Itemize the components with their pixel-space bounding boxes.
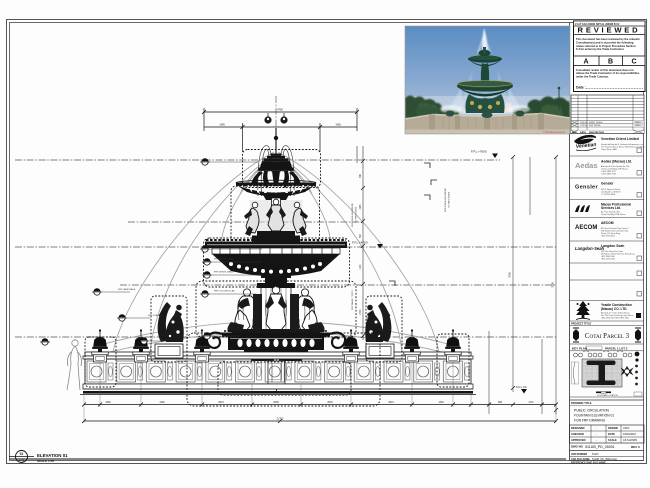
svg-text:REFERENCE DWG FILE NAME: REFERENCE DWG FILE NAME (571, 462, 606, 465)
svg-text:Aedas (Macau) Ltd.: Aedas (Macau) Ltd. (601, 160, 632, 164)
svg-text:F.F.L +4750: F.F.L +4750 (352, 241, 368, 245)
svg-text:Taipa, Macau SAR: Taipa, Macau SAR (601, 148, 617, 151)
svg-text:F.F.L ±0: F.F.L ±0 (516, 385, 527, 389)
svg-text:Venetian Orient Limited: Venetian Orient Limited (601, 137, 639, 141)
svg-text:1460: 1460 (438, 401, 444, 404)
svg-text:2700: 2700 (360, 309, 362, 315)
svg-text:Gensler: Gensler (575, 185, 598, 191)
svg-text:2515: 2515 (327, 401, 333, 404)
svg-text:APPROVED: APPROVED (571, 438, 586, 442)
svg-text:Date :: Date : (576, 86, 586, 90)
svg-text:-: - (596, 439, 597, 442)
svg-text:7600: 7600 (551, 282, 555, 288)
svg-text:DATE: DATE (608, 432, 615, 436)
svg-text:This document has been reviewe: This document has been reviewed by the r… (576, 37, 640, 41)
svg-text:Langdon Seah: Langdon Seah (601, 244, 624, 248)
svg-text:15/04/2016: 15/04/2016 (623, 432, 637, 436)
svg-text:f 852 2576 0416: f 852 2576 0416 (601, 259, 615, 261)
svg-text:FOUNTAIN ELEVATION 01: FOUNTAIN ELEVATION 01 (574, 414, 614, 418)
svg-text:t 1 213 615 6800: t 1 213 615 6800 (601, 193, 615, 196)
svg-text:1495: 1495 (335, 124, 341, 127)
svg-text:1495: 1495 (219, 124, 225, 127)
svg-text:FRP DENTIL BAND: FRP DENTIL BAND (214, 271, 234, 274)
svg-text:CHECKED: CHECKED (571, 432, 584, 436)
svg-text:AECOM: AECOM (601, 221, 614, 225)
svg-text:2060: 2060 (273, 401, 279, 404)
svg-text:DWG NO: DWG NO (571, 445, 584, 449)
svg-text:12/5/16: 12/5/16 (580, 125, 588, 127)
svg-text:REVIEWED: REVIEWED (578, 26, 641, 35)
svg-text:(Macau) CO. LTD.: (Macau) CO. LTD. (601, 307, 627, 311)
svg-text:FRP STATUE: FRP STATUE (148, 314, 162, 317)
svg-text:JOB NUMBER: JOB NUMBER (571, 453, 587, 456)
svg-text:7600: 7600 (508, 272, 512, 278)
svg-text:FOUNTAIN LOCATION: FOUNTAIN LOCATION (597, 394, 618, 397)
svg-text:980: 980 (498, 401, 503, 404)
svg-text:1960: 1960 (105, 401, 111, 404)
svg-text:DRAWN: DRAWN (608, 426, 618, 430)
svg-text:f +853 2833 1378: f +853 2833 1378 (601, 174, 616, 176)
svg-text:51123: 51123 (592, 453, 599, 456)
svg-text:F.F.L +7600: F.F.L +7600 (471, 150, 487, 154)
svg-text:TO SPEC 09960: TO SPEC 09960 (449, 191, 451, 208)
svg-text:1130: 1130 (360, 264, 362, 270)
svg-text:Consultant review of this docu: Consultant review of this document does … (576, 68, 634, 72)
svg-text:511UB_PD_05001: 511UB_PD_05001 (585, 445, 615, 449)
svg-text:FRP PANEL TYPE 2: FRP PANEL TYPE 2 (351, 289, 354, 310)
svg-text:FOR FRP DRAWING: FOR FRP DRAWING (574, 419, 606, 423)
svg-text:t 853 2870 3113 f 853 2870 3: t 853 2870 3113 f 853 2870 3116 (601, 317, 629, 320)
svg-text:ELEVATION 01: ELEVATION 01 (37, 453, 68, 458)
svg-text:01: 01 (20, 452, 24, 456)
svg-text:15/4/16: 15/4/16 (580, 122, 588, 124)
svg-text:21700: 21700 (277, 418, 284, 421)
svg-text:1460: 1460 (159, 401, 165, 404)
svg-text:4750: 4750 (277, 108, 283, 112)
svg-text:status referred to in Project: status referred to in Project Procedure … (576, 44, 636, 48)
svg-text:2515: 2515 (388, 401, 394, 404)
svg-text:-: - (596, 427, 597, 430)
svg-text:FRP ISSUE: FRP ISSUE (589, 125, 601, 127)
svg-text:FRP COLUMN CLAD: FRP COLUMN CLAD (214, 290, 235, 293)
svg-text:FRP FINISHING REFER: FRP FINISHING REFER (445, 188, 447, 212)
svg-text:DRAWING TITLE: DRAWING TITLE (571, 401, 592, 405)
svg-text:5.4 for action by the Trade Co: 5.4 for action by the Trade Contractor. (576, 47, 625, 51)
svg-text:COTAI PARCEL 3: COTAI PARCEL 3 (585, 333, 630, 340)
svg-text:PARCEL 1 LOT 2: PARCEL 1 LOT 2 (605, 346, 628, 350)
svg-text:SCALE 1:50: SCALE 1:50 (37, 459, 54, 463)
svg-text:PROJECT TITLE: PROJECT TITLE (571, 322, 591, 326)
svg-text:under the Trade Contract.: under the Trade Contract. (576, 75, 609, 79)
svg-text:Gensler: Gensler (601, 182, 614, 186)
svg-text:CWO: CWO (635, 125, 641, 127)
svg-text:1980: 1980 (360, 204, 362, 210)
svg-text:© Photononstop: © Photononstop (543, 130, 565, 134)
svg-text:FRP FINISHING REFER: FRP FINISHING REFER (352, 203, 354, 227)
svg-text:Services Ltd.: Services Ltd. (601, 206, 621, 210)
svg-text:SCALE: SCALE (608, 438, 617, 442)
svg-text:TO SPEC 09960: TO SPEC 09960 (356, 206, 358, 223)
svg-text:C: C (631, 59, 636, 66)
svg-text:China Law Bldg, 11/A, Macau: China Law Bldg, 11/A, Macau (601, 213, 626, 216)
svg-text:FRP CORNICE MOULDING: FRP CORNICE MOULDING (214, 246, 242, 248)
svg-text:Consultants(s) and is accorded: Consultants(s) and is accorded the follo… (576, 40, 634, 44)
svg-text:FRP LAMP BASE: FRP LAMP BASE (118, 288, 136, 291)
svg-text:FRP FRIEZE PANEL: FRP FRIEZE PANEL (214, 258, 235, 261)
svg-text:1170: 1170 (528, 401, 534, 404)
svg-text:REV 0: REV 0 (631, 445, 640, 449)
svg-text:AECOM: AECOM (575, 225, 597, 231)
svg-text:PUBLIC CIRCULATION: PUBLIC CIRCULATION (574, 409, 610, 413)
svg-text:relieve the Trade Contractor o: relieve the Trade Contractor of its resp… (576, 71, 640, 75)
svg-text:2700: 2700 (367, 315, 369, 321)
svg-text:t 852 3922 9000: t 852 3922 9000 (601, 235, 615, 238)
svg-text:A: A (583, 59, 588, 66)
svg-text:KEY PLAN: KEY PLAN (572, 346, 587, 350)
svg-text:CWO: CWO (635, 122, 641, 124)
svg-text:-: - (596, 433, 597, 436)
svg-text:FIRST ISSUE: FIRST ISSUE (589, 122, 603, 124)
svg-text:AS SHOWN: AS SHOWN (623, 438, 637, 442)
svg-text:Aedas: Aedas (575, 161, 598, 170)
svg-text:2515: 2515 (218, 401, 224, 404)
svg-text:CWO: CWO (623, 426, 629, 430)
svg-text:DESIGNED: DESIGNED (571, 426, 585, 430)
svg-text:B: B (608, 59, 613, 66)
